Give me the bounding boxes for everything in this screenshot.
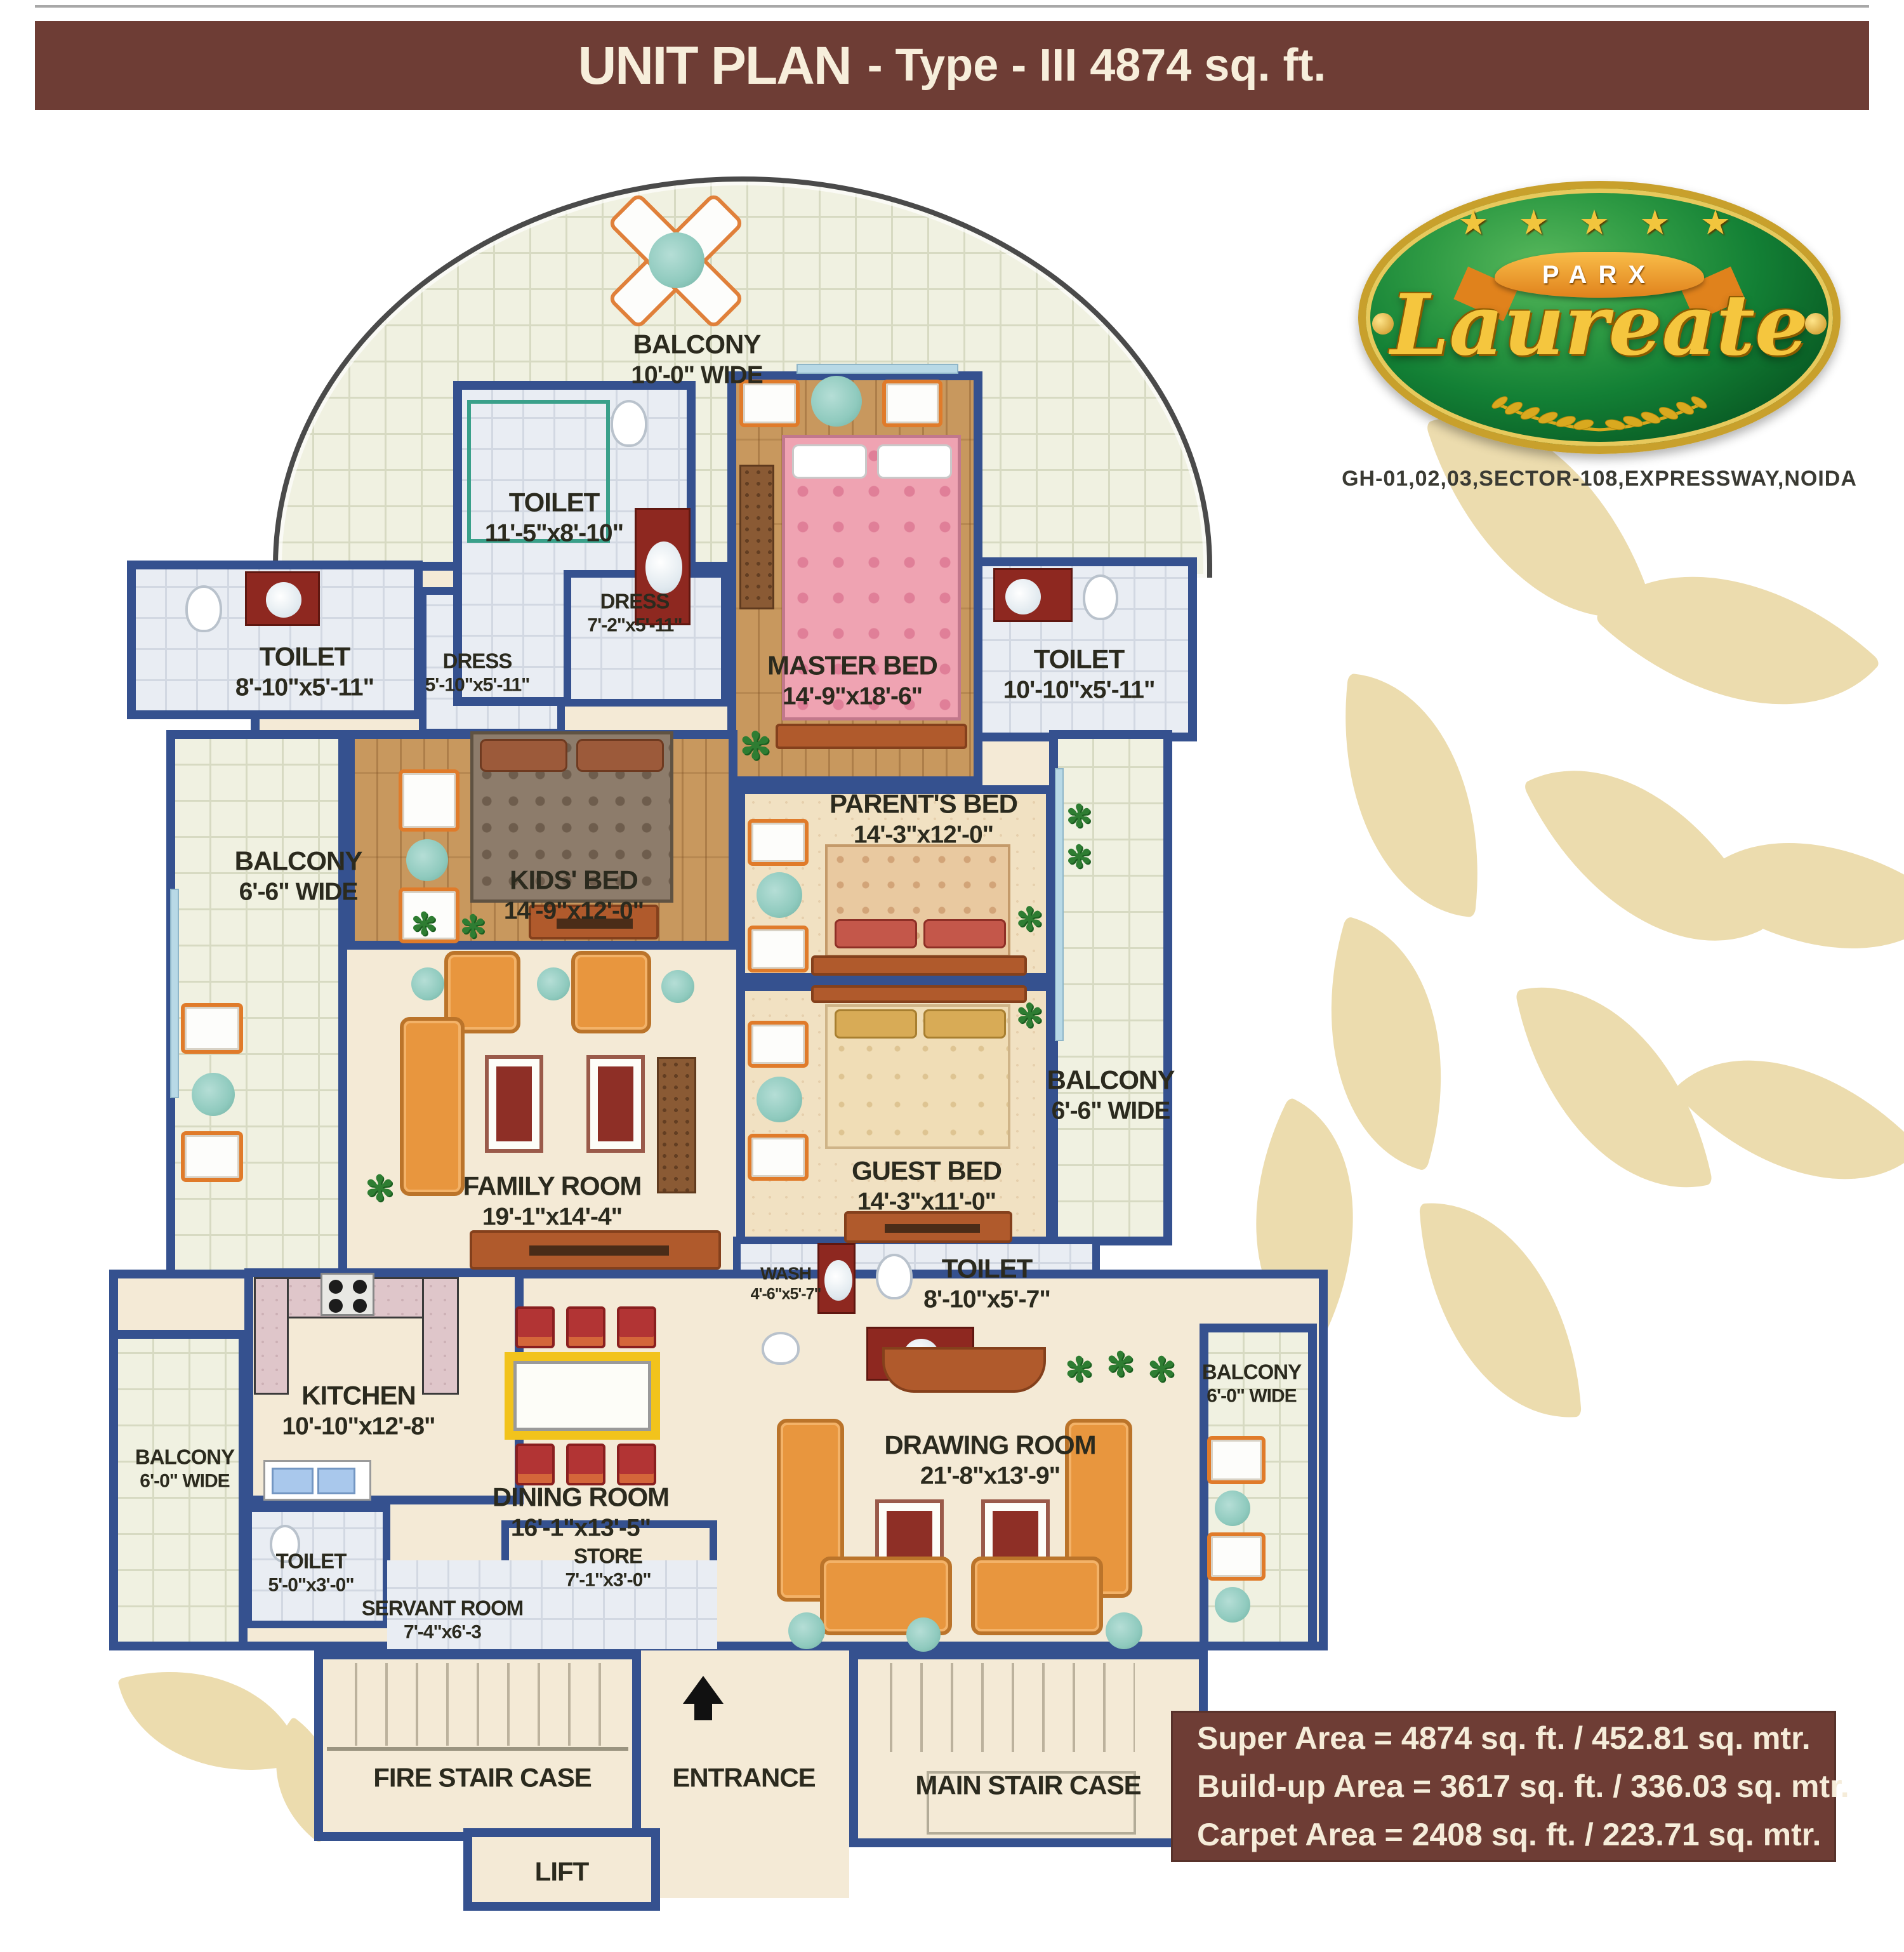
round-table bbox=[1215, 1587, 1250, 1623]
window-pane bbox=[317, 1468, 355, 1494]
label-wash: WASH4'-6"x5'-7" bbox=[751, 1263, 821, 1305]
sofa bbox=[400, 1017, 465, 1196]
stair-steps bbox=[862, 1663, 1135, 1752]
plant-icon: ✻ bbox=[1106, 1346, 1134, 1384]
dining-chair bbox=[515, 1444, 555, 1485]
plant-icon: ✻ bbox=[365, 1169, 393, 1209]
sofa bbox=[971, 1557, 1103, 1635]
plant-icon: ✻ bbox=[1066, 799, 1092, 834]
console-table bbox=[882, 1347, 1046, 1393]
logo-dot-icon bbox=[1805, 313, 1827, 335]
lounge-chair bbox=[748, 819, 809, 866]
entrance-arrow-icon bbox=[683, 1676, 724, 1704]
brand-main-label: Laureate bbox=[1358, 276, 1841, 375]
center-table bbox=[590, 1059, 641, 1149]
round-table bbox=[406, 839, 448, 881]
label-guest-bed: GUEST BED14'-3"x11'-0" bbox=[852, 1155, 1002, 1218]
unit-plan-page: UNIT PLAN - Type - III 4874 sq. ft. ★ ★ … bbox=[0, 0, 1904, 1952]
center-table bbox=[879, 1503, 940, 1564]
pillow bbox=[480, 739, 567, 772]
leaf-watermark bbox=[1672, 995, 1904, 1245]
round-table bbox=[788, 1612, 825, 1649]
page-subtitle: - Type - III 4874 sq. ft. bbox=[868, 39, 1326, 91]
label-lift: LIFT bbox=[535, 1855, 589, 1887]
label-drawing-room: DRAWING ROOM21'-8"x13'-9" bbox=[884, 1429, 1095, 1492]
super-area-line: Super Area = 4874 sq. ft. / 452.81 sq. m… bbox=[1197, 1720, 1810, 1756]
round-table bbox=[757, 1077, 802, 1122]
stair-landing-line bbox=[327, 1747, 628, 1751]
top-hairline bbox=[35, 5, 1869, 8]
kitchen-counter bbox=[254, 1277, 289, 1395]
round-table bbox=[192, 1073, 235, 1116]
label-toilet-top: TOILET11'-5"x8'-10" bbox=[485, 486, 623, 549]
plant-icon: ✻ bbox=[740, 724, 771, 767]
dining-chair bbox=[617, 1306, 656, 1348]
label-kids-bed: KIDS' BED14'-9"x12'-0" bbox=[504, 864, 644, 927]
pillow bbox=[923, 1009, 1006, 1039]
round-table bbox=[411, 967, 444, 1000]
label-dining-room: DINING ROOM16'-1"x13'-5" bbox=[493, 1481, 669, 1544]
lounge-chair bbox=[1207, 1532, 1266, 1581]
lounge-chair bbox=[181, 1003, 243, 1054]
dining-table bbox=[505, 1352, 660, 1440]
entrance-arrow-icon bbox=[694, 1704, 712, 1720]
leaf-watermark bbox=[1693, 776, 1904, 1015]
label-fire-stair: FIRE STAIR CASE bbox=[373, 1761, 592, 1793]
toilet-fixture bbox=[1083, 574, 1118, 620]
center-table bbox=[985, 1503, 1046, 1564]
page-title: UNIT PLAN bbox=[578, 35, 851, 96]
label-balcony-bottom-left: BALCONY6'-0" WIDE bbox=[135, 1445, 234, 1494]
pillow bbox=[792, 444, 867, 479]
plant-icon: ✻ bbox=[1066, 839, 1092, 875]
lounge-chair bbox=[748, 926, 809, 973]
plant-icon: ✻ bbox=[411, 906, 437, 942]
lounge-chair bbox=[399, 769, 459, 832]
label-servant-room: SERVANT ROOM7'-4"x6'-3 bbox=[362, 1596, 523, 1645]
laurel-branch-icon bbox=[1463, 383, 1736, 436]
lounge-chair bbox=[748, 1021, 809, 1068]
toilet-fixture bbox=[185, 585, 222, 632]
round-table bbox=[757, 872, 802, 918]
label-dress-left: DRESS5'-10"x5'-11" bbox=[425, 649, 530, 698]
dining-chair bbox=[515, 1306, 555, 1348]
leaf-watermark bbox=[1325, 674, 1499, 918]
label-entrance: ENTRANCE bbox=[672, 1761, 815, 1793]
sink-counter bbox=[993, 568, 1073, 622]
label-balcony-right: BALCONY6'-6" WIDE bbox=[1047, 1064, 1175, 1127]
label-store: STORE7'-1"x3'-0" bbox=[565, 1544, 651, 1593]
parx-laureate-logo: ★ ★ ★ ★ ★ PARX Laureate bbox=[1358, 181, 1841, 454]
leaf-watermark bbox=[1419, 1193, 1582, 1426]
logo-dot-icon bbox=[1372, 313, 1394, 335]
stair-steps bbox=[327, 1663, 628, 1746]
leaf-watermark bbox=[1594, 500, 1882, 781]
dining-chair bbox=[566, 1306, 605, 1348]
round-table bbox=[811, 376, 862, 427]
side-cabinet bbox=[657, 1057, 696, 1193]
pillow bbox=[576, 739, 664, 772]
label-toilet-small: TOILET5'-0"x3'-0" bbox=[268, 1549, 354, 1598]
lounge-chair bbox=[882, 380, 942, 427]
plant-icon: ✻ bbox=[1016, 901, 1043, 938]
label-balcony-bottom-right: BALCONY6'-0" WIDE bbox=[1202, 1360, 1301, 1409]
dining-chair bbox=[617, 1444, 656, 1485]
round-table bbox=[661, 970, 694, 1003]
label-family-room: FAMILY ROOM19'-1"x14'-4" bbox=[463, 1170, 642, 1233]
pillow bbox=[835, 919, 917, 948]
plant-icon: ✻ bbox=[460, 909, 486, 945]
toilet-fixture bbox=[876, 1254, 913, 1299]
wash-basin bbox=[762, 1332, 800, 1365]
carpet-area-line: Carpet Area = 2408 sq. ft. / 223.71 sq. … bbox=[1197, 1816, 1810, 1853]
leaf-watermark bbox=[117, 1640, 303, 1801]
buildup-area-line: Build-up Area = 3617 sq. ft. / 336.03 sq… bbox=[1197, 1768, 1810, 1805]
bed-footboard bbox=[776, 724, 967, 749]
pillow bbox=[877, 444, 952, 479]
round-table bbox=[537, 967, 570, 1000]
label-master-bed: MASTER BED14'-9"x18'-6" bbox=[767, 649, 937, 712]
bed-footboard bbox=[811, 955, 1027, 976]
toilet-fixture bbox=[611, 400, 647, 447]
center-table bbox=[489, 1059, 539, 1149]
label-balcony-top: BALCONY10'-0" WIDE bbox=[631, 328, 762, 391]
label-parents-bed: PARENT'S BED14'-3"x12'-0" bbox=[830, 788, 1017, 851]
round-table bbox=[1215, 1491, 1250, 1526]
sink-counter bbox=[245, 571, 320, 626]
area-info-box: Super Area = 4874 sq. ft. / 452.81 sq. m… bbox=[1171, 1711, 1836, 1862]
dining-chair bbox=[566, 1444, 605, 1485]
window-sill bbox=[1055, 768, 1064, 1041]
lounge-chair bbox=[181, 1131, 243, 1182]
plant-icon: ✻ bbox=[1016, 997, 1043, 1034]
label-toilet-guest: TOILET8'-10"x5'-7" bbox=[923, 1252, 1050, 1315]
label-toilet-left: TOILET8'-10"x5'-11" bbox=[235, 641, 374, 703]
logo-stars-icon: ★ ★ ★ ★ ★ bbox=[1358, 203, 1841, 242]
stove bbox=[321, 1273, 374, 1316]
project-address: GH-01,02,03,SECTOR-108,EXPRESSWAY,NOIDA bbox=[1314, 467, 1885, 491]
sofa bbox=[571, 951, 651, 1033]
pillow bbox=[923, 919, 1006, 948]
header-bar: UNIT PLAN - Type - III 4874 sq. ft. bbox=[35, 21, 1869, 110]
plant-icon: ✻ bbox=[1147, 1351, 1175, 1389]
wardrobe bbox=[739, 465, 774, 609]
plant-icon: ✻ bbox=[1065, 1351, 1093, 1389]
window-sill bbox=[797, 364, 958, 374]
label-dress-top: DRESS7'-2"x5'-11" bbox=[587, 589, 682, 638]
round-table bbox=[906, 1617, 941, 1652]
window-pane bbox=[272, 1468, 314, 1494]
kitchen-counter bbox=[422, 1277, 459, 1395]
lounge-chair bbox=[748, 1134, 809, 1181]
label-toilet-right: TOILET10'-10"x5'-11" bbox=[1003, 643, 1155, 706]
sink-counter bbox=[817, 1243, 856, 1314]
pillow bbox=[835, 1009, 917, 1039]
bed-headboard bbox=[811, 985, 1027, 1003]
round-table bbox=[649, 232, 704, 288]
window-sill bbox=[170, 889, 179, 1098]
label-kitchen: KITCHEN10'-10"x12'-8" bbox=[282, 1379, 435, 1442]
round-table bbox=[1106, 1612, 1142, 1649]
lounge-chair bbox=[1207, 1436, 1266, 1484]
tv-console bbox=[470, 1230, 721, 1270]
label-main-stair: MAIN STAIR CASE bbox=[915, 1769, 1140, 1801]
label-balcony-left: BALCONY6'-6" WIDE bbox=[235, 845, 362, 908]
